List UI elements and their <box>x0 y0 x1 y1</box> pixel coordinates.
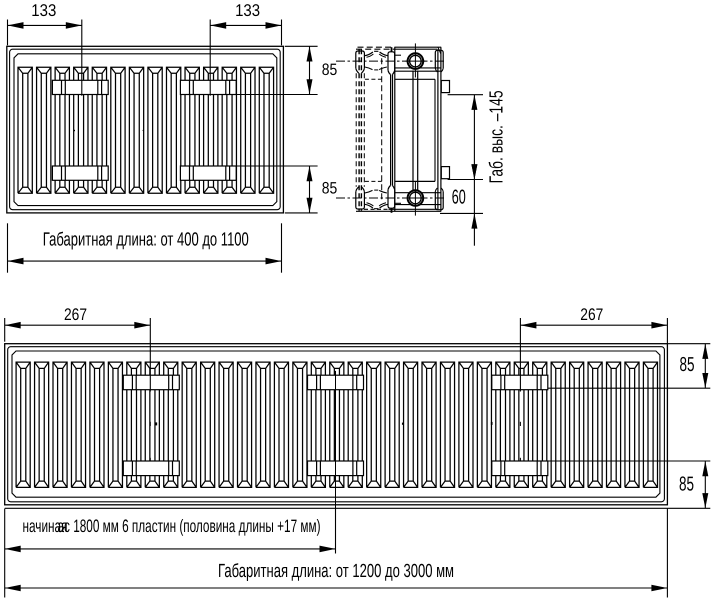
svg-text:133: 133 <box>235 1 260 20</box>
svg-text:ас 1800 мм 6 пластин (половина: ас 1800 мм 6 пластин (половина длины +17… <box>58 516 321 536</box>
svg-text:Габ. выс. –145: Габ. выс. –145 <box>487 90 508 183</box>
svg-text:267: 267 <box>64 305 87 324</box>
svg-text:Габаритная длина: от 400 до 11: Габаритная длина: от 400 до 1100 <box>43 229 249 250</box>
svg-text:60: 60 <box>452 187 466 209</box>
svg-text:267: 267 <box>580 305 603 324</box>
svg-text:85: 85 <box>679 473 694 495</box>
svg-text:85: 85 <box>680 354 695 376</box>
svg-text:85: 85 <box>322 178 338 197</box>
svg-text:133: 133 <box>31 1 56 20</box>
svg-text:Габаритная длина: от 1200 до 3: Габаритная длина: от 1200 до 3000 мм <box>218 561 454 582</box>
svg-text:85: 85 <box>322 60 338 79</box>
